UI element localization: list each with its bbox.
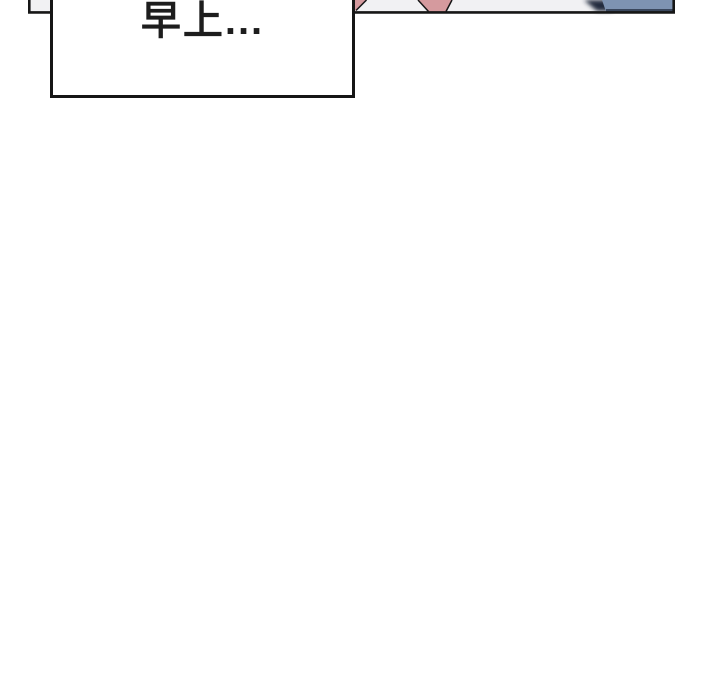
speech-bubble-text: 早上... — [141, 1, 264, 41]
speech-bubble: 早上... — [50, 0, 355, 98]
comic-page: 早上... — [0, 0, 720, 700]
